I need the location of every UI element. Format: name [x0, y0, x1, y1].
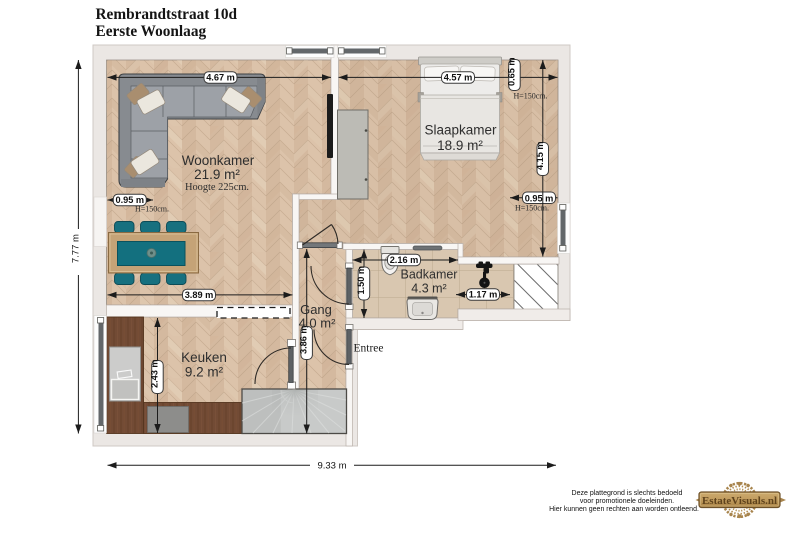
svg-text:9.33 m: 9.33 m — [317, 461, 346, 472]
svg-text:Badkamer: Badkamer — [401, 268, 458, 282]
svg-text:9.2 m²: 9.2 m² — [185, 365, 224, 380]
svg-text:H=150cm.: H=150cm. — [513, 92, 547, 101]
svg-text:Entree: Entree — [354, 343, 384, 355]
svg-text:Slaapkamer: Slaapkamer — [424, 123, 497, 138]
svg-text:18.9 m²: 18.9 m² — [437, 138, 483, 153]
svg-text:Rembrandtstraat 10d: Rembrandtstraat 10d — [96, 6, 238, 23]
svg-text:Hier kunnen geen rechten aan w: Hier kunnen geen rechten aan worden ontl… — [549, 506, 699, 513]
svg-text:EstateVisuals.nl: EstateVisuals.nl — [702, 495, 777, 507]
svg-text:3.89 m: 3.89 m — [185, 290, 214, 300]
svg-text:Deze plattegrond is slechts be: Deze plattegrond is slechts bedoeld — [572, 490, 683, 497]
svg-text:Keuken: Keuken — [181, 350, 227, 365]
svg-text:4.0 m²: 4.0 m² — [299, 316, 337, 331]
svg-text:Eerste Woonlaag: Eerste Woonlaag — [96, 23, 207, 40]
svg-text:voor promotionele doeleinden.: voor promotionele doeleinden. — [580, 498, 674, 505]
svg-text:7.77 m: 7.77 m — [70, 234, 81, 263]
svg-text:2.43 m: 2.43 m — [150, 359, 160, 388]
svg-text:1.17 m: 1.17 m — [469, 290, 498, 300]
svg-text:4.3 m²: 4.3 m² — [411, 282, 446, 296]
svg-text:4.15 m: 4.15 m — [535, 141, 545, 170]
svg-text:21.9 m²: 21.9 m² — [194, 167, 240, 182]
svg-text:H=150cm.: H=150cm. — [515, 204, 549, 213]
svg-text:Hoogte 225cm.: Hoogte 225cm. — [185, 182, 249, 193]
svg-text:4.57 m: 4.57 m — [444, 73, 473, 83]
svg-text:4.67 m: 4.67 m — [206, 73, 235, 83]
svg-text:H=150cm.: H=150cm. — [135, 205, 169, 214]
svg-text:Woonkamer: Woonkamer — [182, 153, 255, 168]
svg-text:2.16 m: 2.16 m — [390, 255, 419, 265]
svg-text:1.50 m: 1.50 m — [356, 266, 366, 295]
svg-text:0.95 m: 0.95 m — [525, 193, 554, 203]
svg-text:0.65 m: 0.65 m — [507, 57, 517, 86]
